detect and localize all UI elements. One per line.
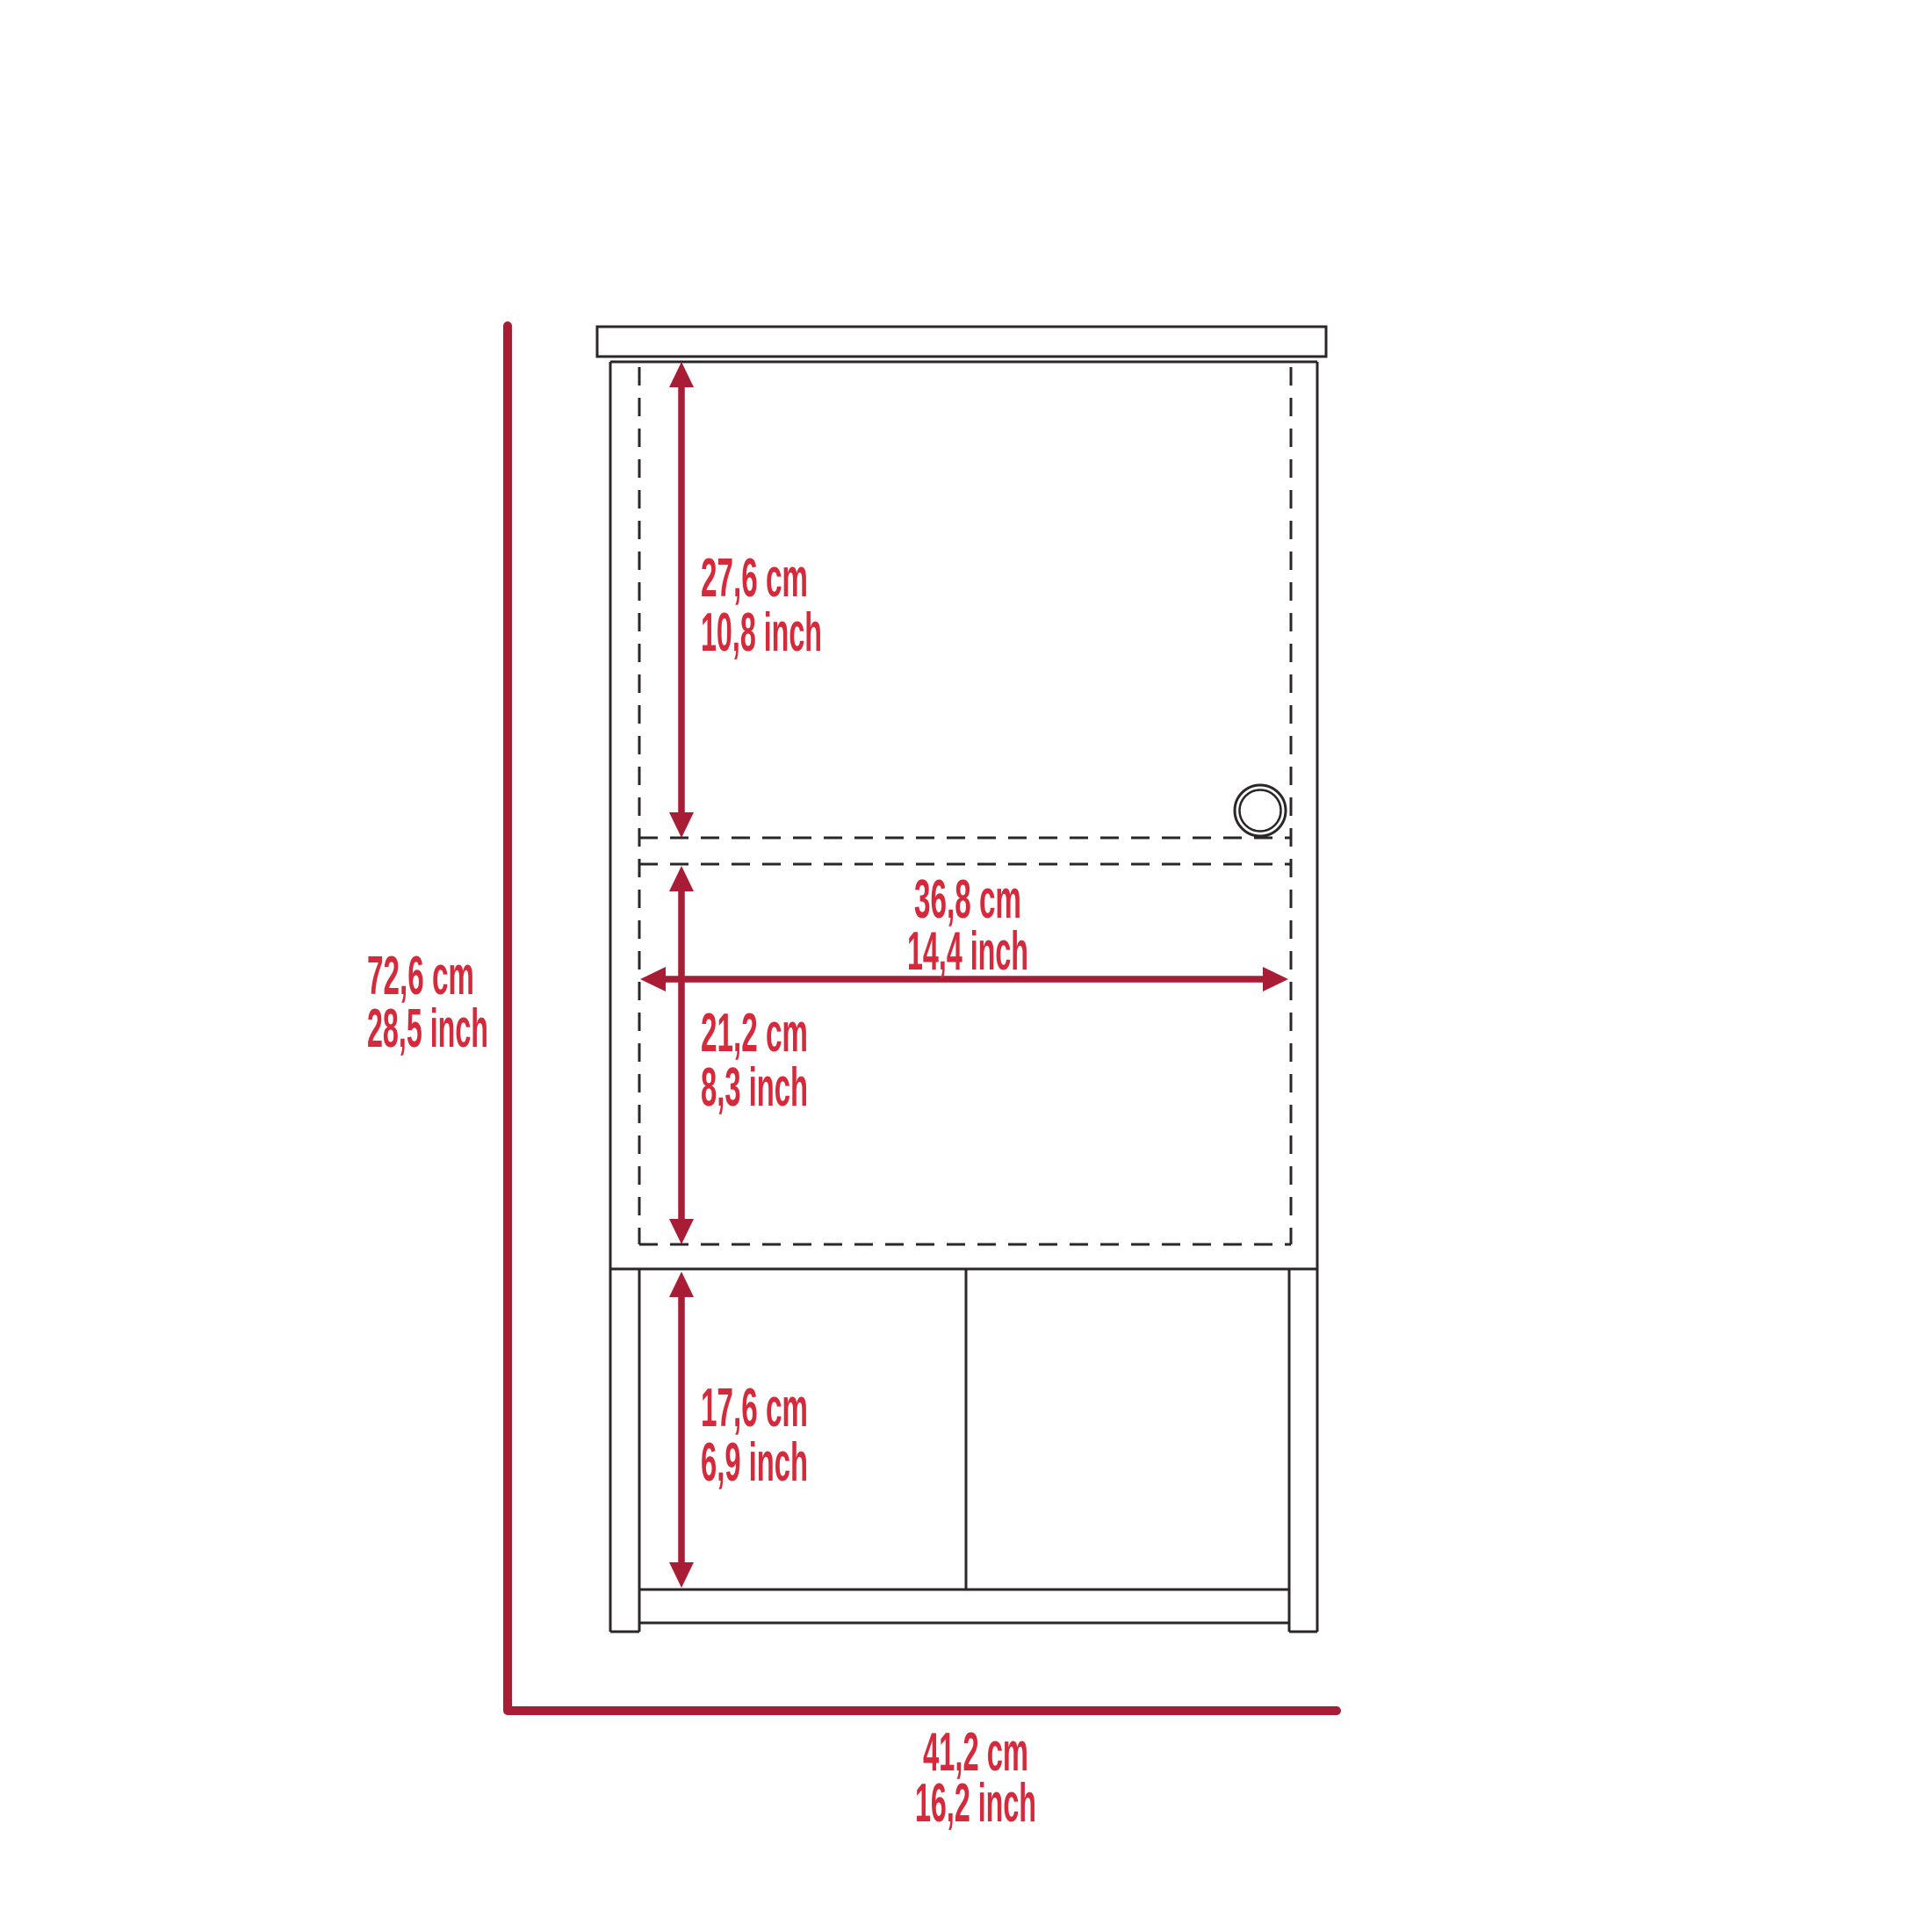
diagram-canvas: 27,6 cm 10,8 inch 36,8 cm 14,4 inch 21,2… xyxy=(0,0,1932,1932)
arrowhead-up xyxy=(669,362,694,387)
arrowhead-up xyxy=(669,866,694,891)
label-overall-width-inch: 16,2 inch xyxy=(915,1773,1036,1834)
arrowhead-right xyxy=(1263,967,1288,991)
door-handle-ring-inner xyxy=(1240,790,1281,832)
dimension-annotations: 27,6 cm 10,8 inch 36,8 cm 14,4 inch 21,2… xyxy=(367,326,1337,1834)
label-interior-width-inch: 14,4 inch xyxy=(907,921,1028,982)
label-overall-height-cm: 72,6 cm xyxy=(367,946,474,1006)
dimension-arrow-middle-section-height xyxy=(669,866,694,1244)
door-handle-ring-outer xyxy=(1235,785,1286,836)
dimension-arrow-open-shelf-height xyxy=(669,1272,694,1588)
label-upper-door-height-cm: 27,6 cm xyxy=(701,548,808,609)
arrowhead-up xyxy=(669,1272,694,1297)
arrowhead-down xyxy=(669,1219,694,1244)
overall-dimension-axis xyxy=(508,326,1337,1711)
label-upper-door-height-inch: 10,8 inch xyxy=(701,602,822,663)
label-overall-height-inch: 28,5 inch xyxy=(367,998,488,1059)
label-middle-section-height-cm: 21,2 cm xyxy=(701,1003,808,1063)
cabinet-top-board xyxy=(597,327,1326,357)
label-open-shelf-height-cm: 17,6 cm xyxy=(701,1378,808,1438)
dimension-arrow-upper-door-height xyxy=(669,362,694,838)
arrowhead-left xyxy=(640,967,666,991)
arrowhead-down xyxy=(669,1562,694,1588)
label-middle-section-height-inch: 8,3 inch xyxy=(701,1057,808,1118)
arrowhead-down xyxy=(669,812,694,838)
label-open-shelf-height-inch: 6,9 inch xyxy=(701,1432,808,1493)
cabinet-dimensions-diagram: 27,6 cm 10,8 inch 36,8 cm 14,4 inch 21,2… xyxy=(0,0,1932,1932)
